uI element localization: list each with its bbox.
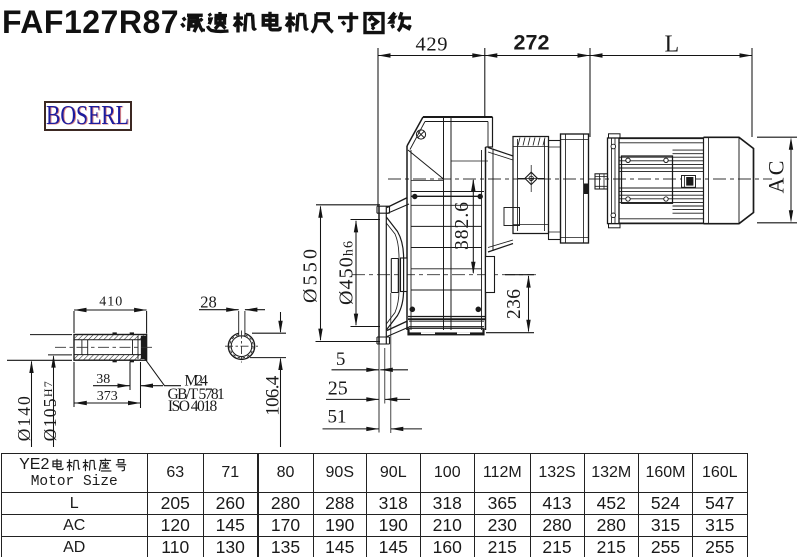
svg-text:Ø450h6: Ø450h6	[336, 241, 358, 305]
svg-text:272: 272	[514, 31, 550, 55]
svg-text:Ø550: Ø550	[300, 249, 322, 303]
svg-text:25: 25	[328, 378, 348, 400]
svg-text:236: 236	[504, 289, 525, 319]
svg-text:410: 410	[99, 295, 122, 310]
svg-text:382.6: 382.6	[452, 202, 473, 250]
svg-text:106.4: 106.4	[263, 375, 284, 416]
svg-text:5: 5	[336, 349, 346, 370]
svg-text:429: 429	[416, 34, 448, 56]
svg-text:AC: AC	[764, 161, 789, 194]
svg-text:38: 38	[96, 372, 110, 387]
svg-text:Ø105H7: Ø105H7	[40, 381, 60, 441]
svg-text:L: L	[664, 32, 679, 58]
svg-text:28: 28	[200, 292, 217, 311]
svg-text:51: 51	[328, 407, 347, 428]
svg-text:ISO 4018: ISO 4018	[168, 398, 218, 415]
svg-text:373: 373	[97, 389, 118, 404]
svg-text:Ø140: Ø140	[14, 396, 34, 441]
